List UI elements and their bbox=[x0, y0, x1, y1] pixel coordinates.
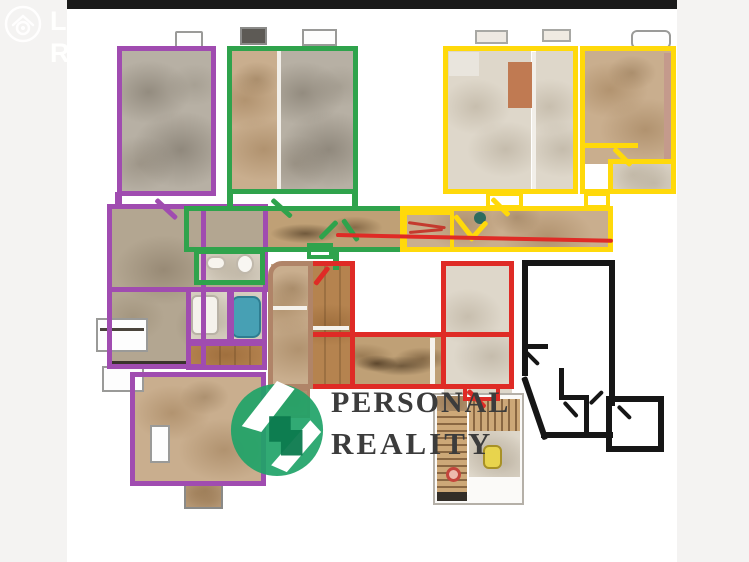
outline-purple-bath bbox=[186, 287, 232, 344]
seg-black-left bbox=[522, 260, 528, 376]
seg-black-right bbox=[609, 260, 615, 406]
outline-yellow-subroom bbox=[608, 159, 676, 194]
watermark-line1: PERSONAL bbox=[331, 386, 510, 420]
watermark-line2: REALITY bbox=[331, 426, 493, 462]
balcony-bottom-room bbox=[184, 484, 223, 509]
balcony-5 bbox=[542, 29, 571, 42]
outline-green-rooms bbox=[227, 46, 358, 194]
right-gray-strip bbox=[677, 0, 749, 562]
floorplan-shapes-layer bbox=[0, 0, 749, 562]
outline-yellow-subbox bbox=[403, 211, 454, 251]
wall-yellow-roomB bbox=[580, 143, 638, 148]
floorplan-image: L R PERSONAL REALITY bbox=[0, 0, 749, 562]
frame-yellow-roomB-door bbox=[584, 192, 610, 209]
outline-red-right bbox=[441, 261, 514, 389]
notch-green bbox=[307, 243, 333, 259]
balcony-2 bbox=[240, 27, 267, 45]
seg-black-step bbox=[521, 376, 548, 440]
outline-purple-wc bbox=[229, 287, 267, 344]
seg-black-top bbox=[522, 260, 615, 266]
balcony-4 bbox=[475, 30, 508, 44]
outline-green-bath bbox=[194, 249, 265, 285]
connector-green-left bbox=[227, 192, 233, 208]
left-gray-strip: L R bbox=[0, 0, 67, 562]
corner-logo-letter-2: R bbox=[50, 40, 67, 67]
outline-green-corridor bbox=[184, 206, 405, 252]
stair-bottom-dark bbox=[437, 492, 467, 501]
seg-black-stub-1 bbox=[522, 344, 548, 349]
outline-yellow-roomA bbox=[443, 46, 578, 194]
seg-black-bottom bbox=[541, 432, 613, 438]
stair-marker bbox=[446, 467, 461, 482]
personal-reality-logo-icon bbox=[228, 381, 326, 479]
top-black-bar bbox=[67, 0, 684, 9]
outline-purple-hall bbox=[186, 341, 267, 370]
connector-green-right bbox=[352, 192, 358, 208]
outline-black-annex bbox=[606, 396, 664, 452]
door-black-3 bbox=[589, 390, 605, 406]
outline-brown-room bbox=[268, 261, 313, 389]
corner-logo-letter-1: L bbox=[50, 8, 67, 35]
door-black-2 bbox=[563, 401, 579, 419]
balcony-3 bbox=[302, 29, 337, 46]
connector-purple bbox=[115, 192, 122, 208]
house-camera-circle-icon bbox=[3, 4, 43, 44]
outline-purple-top-room bbox=[117, 46, 216, 196]
